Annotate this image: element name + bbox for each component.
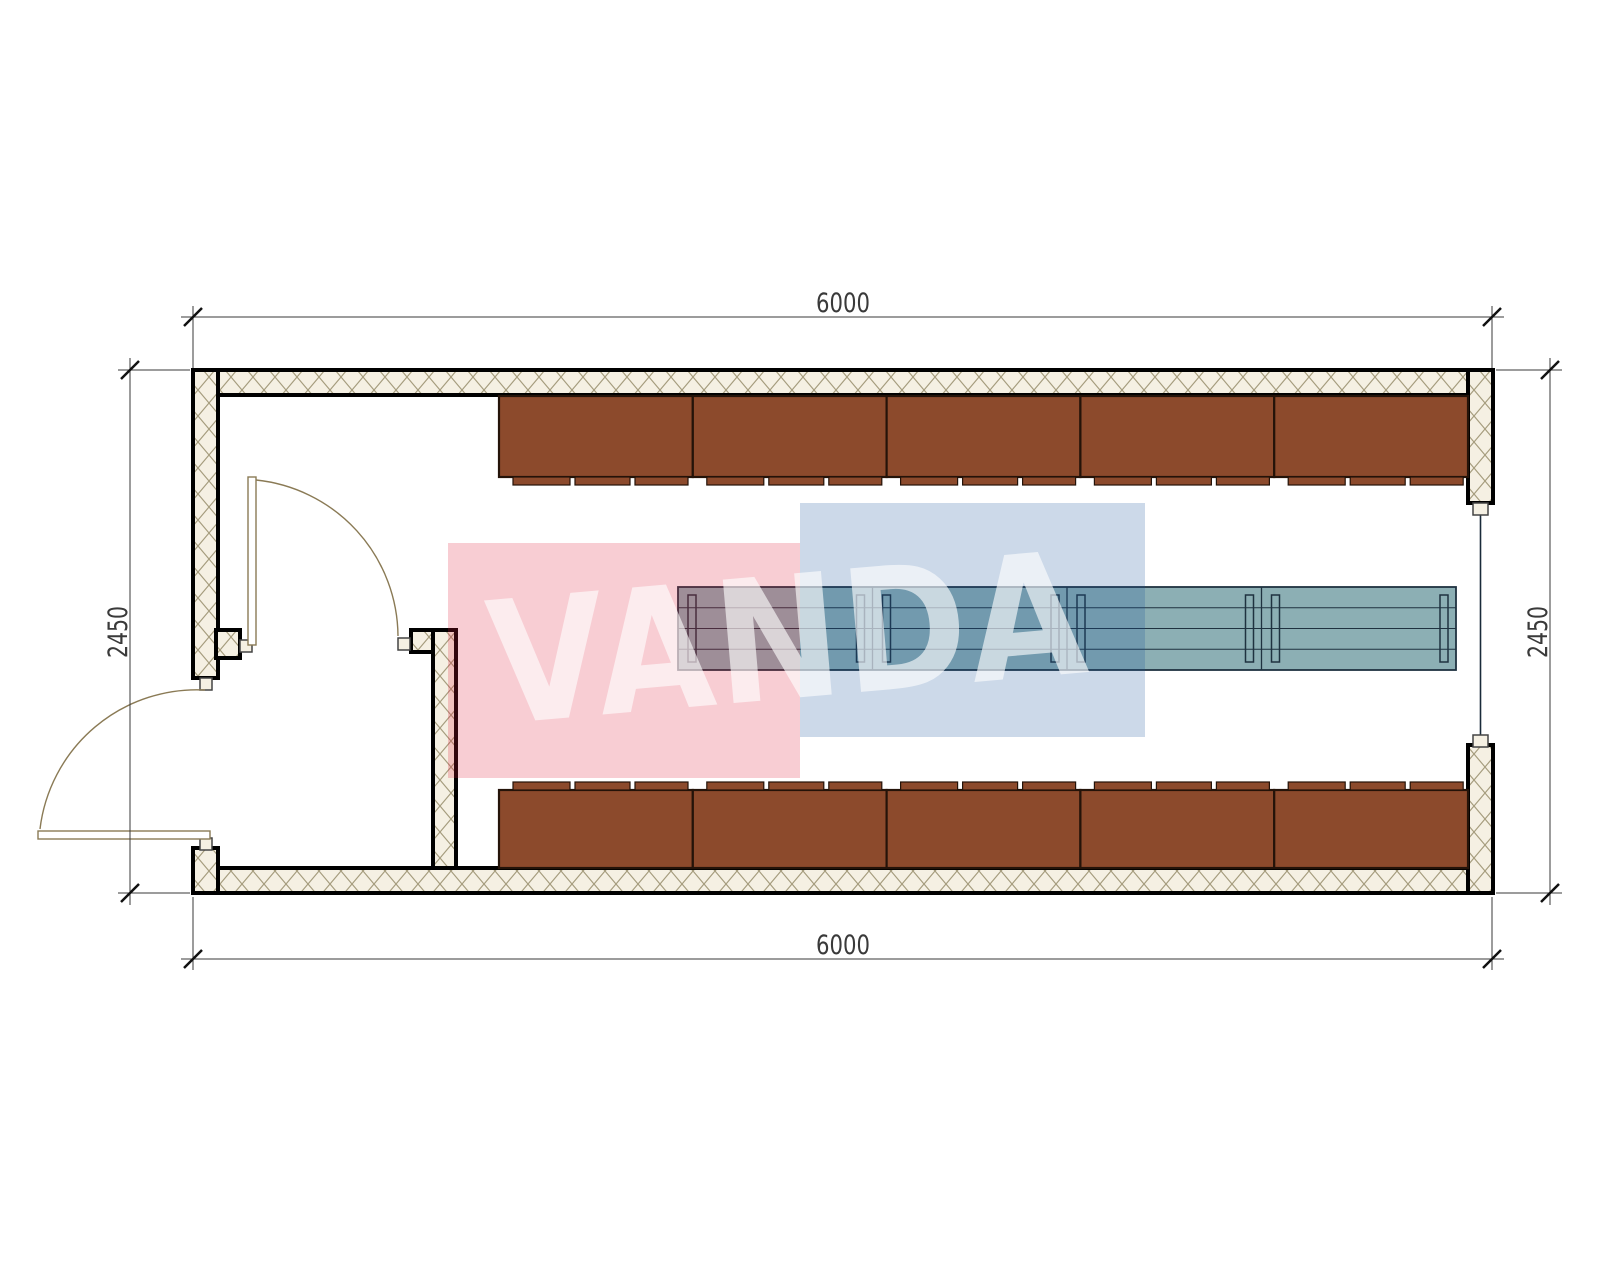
window-frame-bottom [1473, 735, 1488, 747]
exterior-door-frame-top [200, 678, 212, 690]
cabinet-row-bottom [499, 782, 1468, 868]
wall-right-upper [1468, 370, 1493, 503]
exterior-door-swing-arc [40, 690, 205, 829]
cabinet-unit [1274, 396, 1468, 477]
floor-plan-page: 6000 6000 2450 [0, 0, 1600, 1280]
wall-bottom [193, 868, 1493, 893]
window-right [1473, 503, 1488, 747]
cabinet-unit [1274, 790, 1468, 868]
wall-top [193, 370, 1493, 395]
cabinet-unit [1080, 790, 1274, 868]
interior-door-leaf [248, 477, 256, 645]
dimension-label-left: 2450 [103, 606, 134, 658]
cabinet-unit [693, 790, 887, 868]
dimension-label-top: 6000 [816, 288, 870, 319]
wall-right-lower [1468, 745, 1493, 893]
interior-door-swing-arc [256, 480, 398, 636]
watermark: VANDA [448, 503, 1145, 778]
exterior-door-frame-bottom [200, 838, 212, 850]
dimension-left: 2450 [103, 358, 190, 905]
exterior-door [38, 678, 212, 850]
dimension-label-right: 2450 [1523, 606, 1554, 658]
cabinet-trim-bars-bottom [513, 782, 1463, 790]
exterior-door-leaf [38, 831, 210, 839]
dimension-bottom: 6000 [181, 897, 1504, 970]
wall-left-bottom-corner [193, 848, 218, 893]
dimension-right: 2450 [1496, 358, 1562, 905]
dimension-top: 6000 [181, 288, 1504, 368]
cabinet-row-top [499, 396, 1468, 485]
cabinet-trim-bars-top [513, 477, 1463, 485]
dimension-label-bottom: 6000 [816, 930, 870, 961]
cabinet-unit [499, 790, 693, 868]
interior-door-frame-right [398, 638, 410, 650]
interior-door [240, 477, 410, 652]
window-frame-top [1473, 503, 1488, 515]
cabinet-unit [693, 396, 887, 477]
cabinet-unit [887, 396, 1081, 477]
cabinet-unit [499, 396, 693, 477]
wall-partition-door-jamb [411, 630, 433, 652]
floor-plan-drawing: 6000 6000 2450 [0, 0, 1600, 1280]
cabinet-unit [1080, 396, 1274, 477]
cabinet-unit [887, 790, 1081, 868]
wall-left-door-jamb [216, 630, 240, 658]
